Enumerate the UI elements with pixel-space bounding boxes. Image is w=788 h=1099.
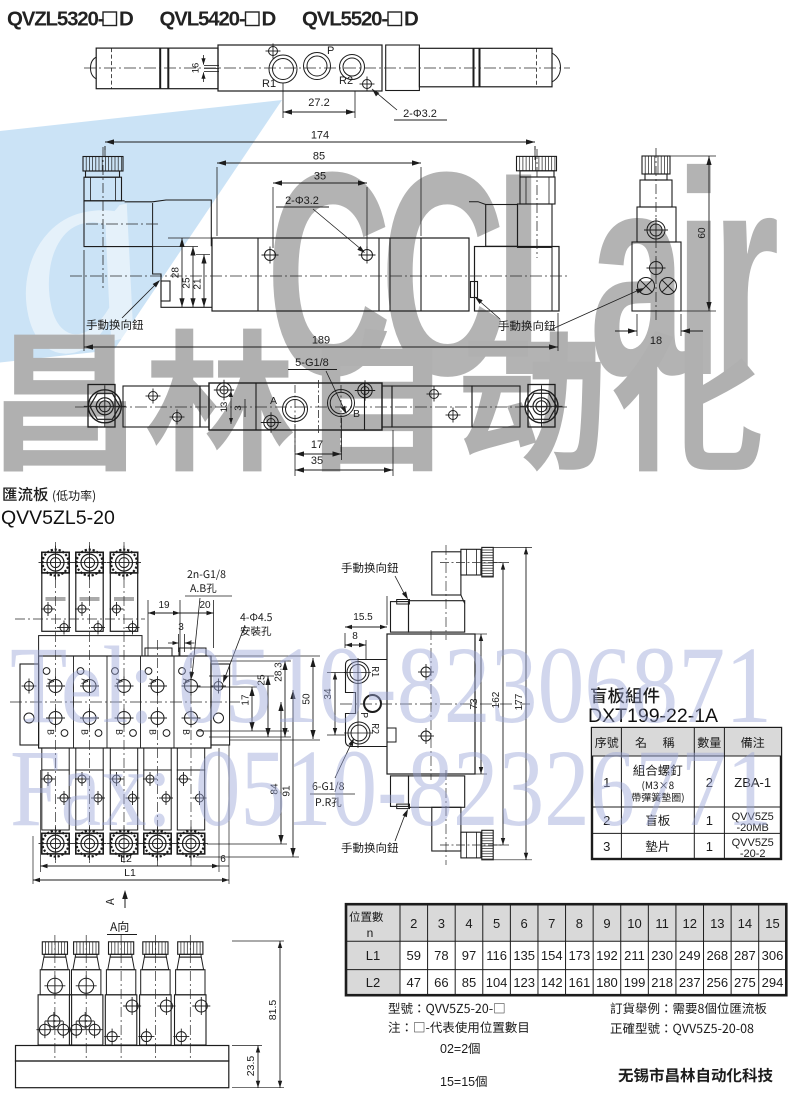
svg-text:6: 6 [521, 916, 528, 931]
svg-text:5-G1/8: 5-G1/8 [295, 357, 329, 369]
svg-text:116: 116 [486, 948, 507, 963]
svg-text:189: 189 [312, 335, 330, 347]
svg-text:173: 173 [569, 948, 591, 963]
svg-text:QVL5420-: QVL5420- [160, 8, 245, 31]
svg-text:192: 192 [596, 948, 618, 963]
svg-text:154: 154 [541, 948, 563, 963]
svg-text:16: 16 [191, 63, 202, 74]
svg-text:Fax: 0510-82326771: Fax: 0510-82326771 [10, 727, 772, 849]
svg-text:23.5: 23.5 [245, 1056, 257, 1077]
svg-text:P: P [327, 45, 334, 57]
svg-text:199: 199 [624, 975, 646, 990]
svg-text:230: 230 [651, 948, 673, 963]
svg-text:5: 5 [493, 916, 500, 931]
svg-text:8: 8 [576, 916, 583, 931]
svg-text:218: 218 [651, 975, 673, 990]
svg-text:256: 256 [706, 975, 728, 990]
svg-text:2-Φ3.2: 2-Φ3.2 [403, 108, 437, 120]
svg-text:249: 249 [679, 948, 701, 963]
svg-text:9: 9 [603, 916, 610, 931]
svg-text:02=2: 02=2 [440, 1042, 468, 1056]
svg-text:237: 237 [679, 975, 701, 990]
svg-text:2-Φ3.2: 2-Φ3.2 [285, 195, 319, 207]
svg-text:10: 10 [627, 916, 641, 931]
svg-text:20: 20 [199, 600, 211, 611]
svg-text:59: 59 [407, 948, 421, 963]
svg-text:n: n [367, 926, 374, 940]
svg-text:161: 161 [569, 975, 591, 990]
svg-text:D: D [119, 8, 134, 31]
svg-text:13: 13 [219, 402, 230, 413]
svg-text:3: 3 [233, 405, 244, 410]
svg-text:28: 28 [171, 267, 182, 279]
svg-text:81.5: 81.5 [267, 1000, 279, 1021]
svg-text:211: 211 [624, 948, 645, 963]
svg-text:78: 78 [434, 948, 448, 963]
svg-text:A: A [270, 395, 277, 407]
svg-text:12: 12 [682, 916, 696, 931]
svg-text:L2: L2 [366, 975, 380, 990]
svg-text:35: 35 [314, 171, 326, 183]
svg-text:D: D [404, 8, 419, 31]
svg-text:18: 18 [650, 335, 662, 347]
svg-text:-20-2: -20-2 [740, 848, 766, 860]
svg-text:L1: L1 [124, 867, 136, 879]
svg-text:180: 180 [596, 975, 618, 990]
svg-text:QVZL5320-: QVZL5320- [7, 8, 104, 31]
svg-text:15: 15 [765, 916, 779, 931]
svg-text:15.5: 15.5 [353, 612, 373, 623]
svg-text:L2: L2 [120, 853, 132, 865]
svg-text:47: 47 [407, 975, 421, 990]
svg-text:25: 25 [182, 277, 193, 289]
svg-text:85: 85 [462, 975, 476, 990]
svg-text:11: 11 [655, 916, 669, 931]
svg-text:27.2: 27.2 [308, 97, 329, 109]
svg-text:QVV5ZL5-20: QVV5ZL5-20 [1, 507, 115, 529]
svg-text:35: 35 [311, 455, 323, 467]
svg-text:85: 85 [313, 151, 325, 163]
svg-text:15=15: 15=15 [440, 1075, 475, 1089]
svg-text:3: 3 [438, 916, 445, 931]
svg-text:17: 17 [311, 439, 323, 451]
svg-text:21: 21 [193, 278, 204, 290]
svg-text:60: 60 [697, 227, 708, 239]
svg-text:6: 6 [220, 854, 226, 865]
svg-text:268: 268 [706, 948, 728, 963]
svg-text:R1: R1 [262, 78, 276, 90]
svg-text:2: 2 [410, 916, 417, 931]
svg-text:7: 7 [548, 916, 555, 931]
svg-text:14: 14 [738, 916, 752, 931]
svg-text:142: 142 [541, 975, 563, 990]
svg-text:135: 135 [513, 948, 535, 963]
svg-text:R2: R2 [339, 75, 353, 87]
svg-text:97: 97 [462, 948, 476, 963]
svg-text:13: 13 [710, 916, 724, 931]
svg-text:4: 4 [465, 916, 472, 931]
svg-text:123: 123 [513, 975, 535, 990]
svg-text:L1: L1 [366, 948, 380, 963]
svg-text:174: 174 [311, 130, 329, 142]
svg-text:QVL5520-: QVL5520- [302, 8, 387, 31]
svg-text:294: 294 [762, 975, 784, 990]
svg-text:275: 275 [734, 975, 756, 990]
svg-text:287: 287 [734, 948, 756, 963]
svg-text:104: 104 [486, 975, 508, 990]
svg-text:B: B [353, 408, 360, 420]
svg-text:19: 19 [158, 600, 170, 611]
svg-text:66: 66 [434, 975, 448, 990]
svg-text:306: 306 [762, 948, 784, 963]
svg-text:D: D [262, 8, 277, 31]
